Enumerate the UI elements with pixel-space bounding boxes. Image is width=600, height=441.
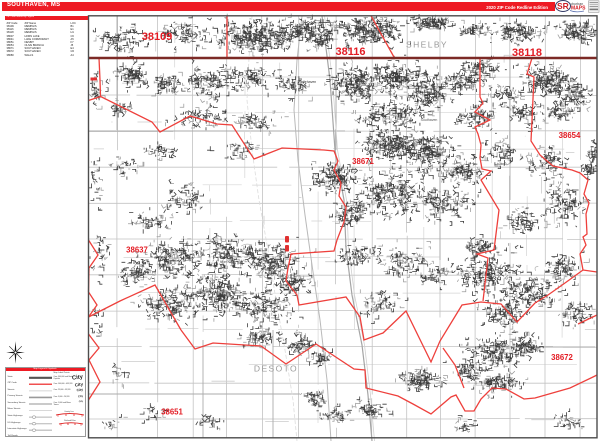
svg-text:DESOTO: DESOTO bbox=[254, 364, 298, 374]
svg-text:Horn Lake: Horn Lake bbox=[220, 260, 236, 264]
svg-text:38671: 38671 bbox=[352, 157, 374, 166]
svg-text:38109: 38109 bbox=[142, 31, 173, 43]
svg-text:SHELBY: SHELBY bbox=[406, 40, 448, 50]
svg-text:38116: 38116 bbox=[336, 46, 366, 58]
svg-text:Southaven: Southaven bbox=[421, 118, 438, 122]
svg-text:38637: 38637 bbox=[126, 246, 148, 255]
svg-text:Whitehaven: Whitehaven bbox=[298, 80, 317, 84]
svg-text:38651: 38651 bbox=[161, 408, 183, 417]
svg-text:38672: 38672 bbox=[551, 353, 573, 362]
svg-text:Railroad/Other: Railroad/Other bbox=[64, 419, 76, 422]
svg-text:38654: 38654 bbox=[559, 131, 581, 140]
svg-text:38118: 38118 bbox=[512, 47, 542, 59]
svg-text:County Line: County Line bbox=[64, 410, 74, 413]
